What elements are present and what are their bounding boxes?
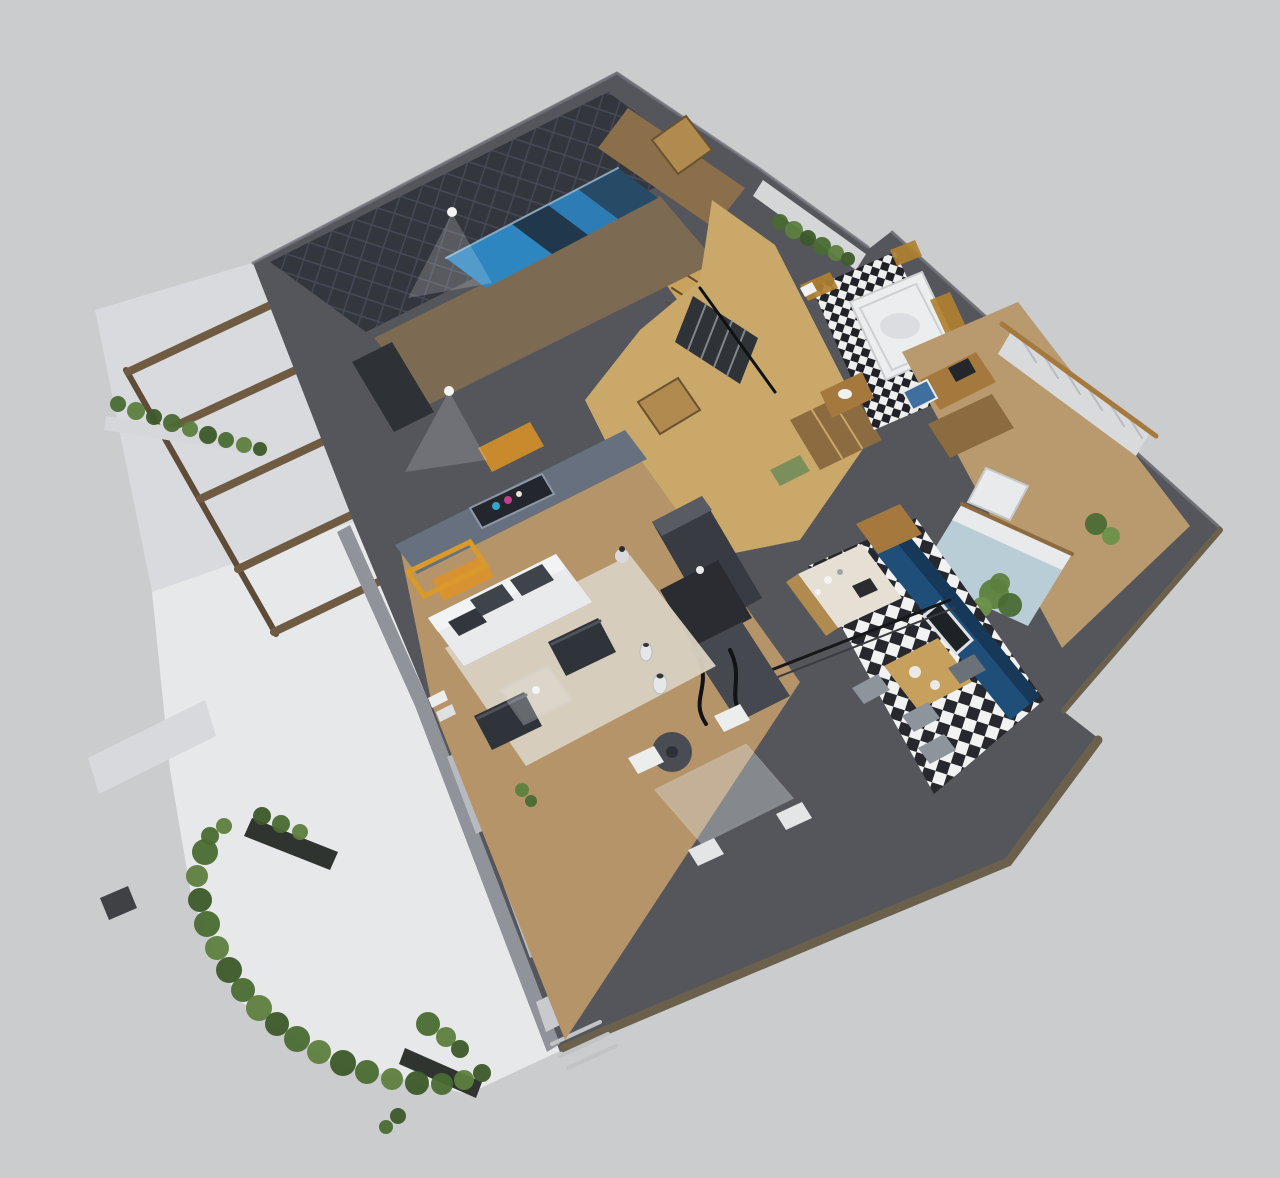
wall-planter-greens-leaf bbox=[146, 409, 162, 425]
bedroom2-plants-leaf bbox=[1102, 527, 1120, 545]
hedge-curve-leaf bbox=[265, 1012, 289, 1036]
hedge-curve-leaf bbox=[330, 1050, 356, 1076]
wall-planter-greens-leaf bbox=[163, 414, 181, 432]
kitchen-counter-items-leaf bbox=[815, 589, 821, 595]
side-table-lamp bbox=[619, 546, 625, 552]
floor-plan-render bbox=[0, 0, 1280, 1178]
bedroom2-plants-leaf bbox=[990, 573, 1010, 593]
hedge-curve-leaf bbox=[216, 818, 232, 834]
hedge-curve-leaf bbox=[186, 865, 208, 887]
kitchen-counter-items-leaf bbox=[824, 576, 832, 584]
wall-planter-greens-leaf bbox=[182, 421, 198, 437]
coffee-table-item bbox=[532, 686, 540, 694]
hedge-curve-leaf bbox=[473, 1064, 491, 1082]
hedge-curve-leaf bbox=[292, 824, 308, 840]
round-rug-table bbox=[666, 746, 678, 758]
tv-screen-color-3 bbox=[516, 491, 522, 497]
hedge-curve-leaf bbox=[253, 807, 271, 825]
wall-planter-greens-leaf bbox=[253, 442, 267, 456]
scene-root bbox=[0, 0, 1280, 1178]
utility-wall-light bbox=[696, 566, 704, 574]
kitchen-plates-leaf bbox=[930, 680, 940, 690]
hedge-curve-leaf bbox=[188, 888, 212, 912]
hedge-curve-leaf bbox=[194, 911, 220, 937]
wall-planter-greens-leaf bbox=[236, 437, 252, 453]
tv-screen-color-1 bbox=[492, 502, 500, 510]
tv-screen-color-2 bbox=[504, 496, 512, 504]
bedroom2-plants-leaf bbox=[998, 593, 1022, 617]
hedge-curve-leaf bbox=[379, 1120, 393, 1134]
hedge-curve-leaf bbox=[451, 1040, 469, 1058]
floor-plan-stage bbox=[0, 0, 1280, 1178]
wall-planter-greens-leaf bbox=[127, 402, 145, 420]
wall-planter-greens-leaf bbox=[110, 396, 126, 412]
vase-2-mouth bbox=[657, 674, 664, 679]
wall-planter-greens-leaf bbox=[199, 426, 217, 444]
vase-1-mouth bbox=[643, 643, 649, 647]
hedge-curve-leaf bbox=[355, 1060, 379, 1084]
lamp-bulb-2 bbox=[444, 386, 454, 396]
living-plant-sprig-leaf bbox=[515, 783, 529, 797]
hedge-curve-leaf bbox=[390, 1108, 406, 1124]
hedge-curve-leaf bbox=[381, 1068, 403, 1090]
kitchen-counter-items-leaf bbox=[837, 569, 843, 575]
lamp-bulb-1 bbox=[447, 207, 457, 217]
bathroom-sink bbox=[838, 389, 852, 399]
kitchen-plates-leaf bbox=[909, 666, 921, 678]
hedge-curve-leaf bbox=[454, 1070, 474, 1090]
hedge-curve-leaf bbox=[431, 1073, 453, 1095]
hedge-curve-leaf bbox=[307, 1040, 331, 1064]
entry-planter-greens-leaf bbox=[841, 252, 855, 266]
hedge-curve-leaf bbox=[272, 815, 290, 833]
hedge-curve-leaf bbox=[416, 1012, 440, 1036]
hedge-curve-leaf bbox=[284, 1026, 310, 1052]
wall-planter-greens-leaf bbox=[218, 432, 234, 448]
hedge-curve-leaf bbox=[201, 827, 219, 845]
bathroom-tub-basin bbox=[880, 313, 920, 339]
living-plant-sprig-leaf bbox=[525, 795, 537, 807]
hedge-curve-leaf bbox=[205, 936, 229, 960]
hedge-curve-leaf bbox=[405, 1071, 429, 1095]
